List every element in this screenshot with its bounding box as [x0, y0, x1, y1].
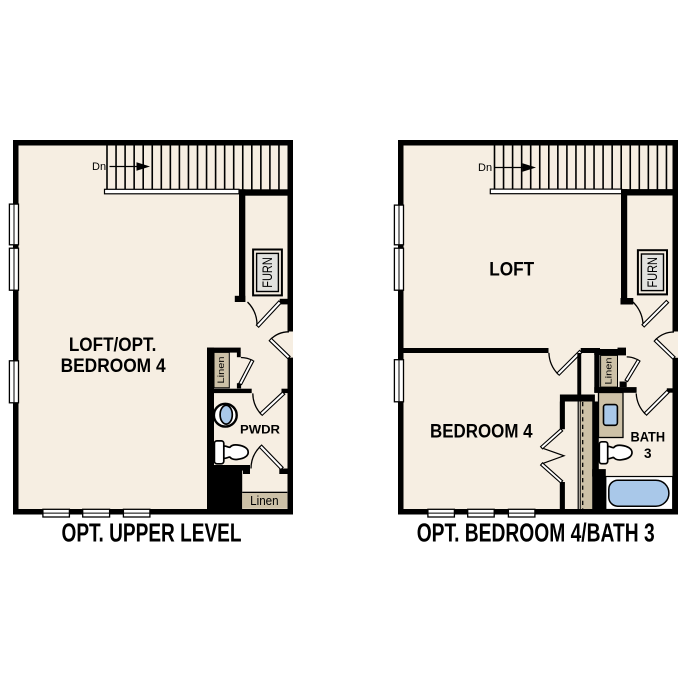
svg-text:3: 3 [644, 446, 652, 461]
svg-text:LOFT: LOFT [489, 260, 534, 281]
svg-text:Dn: Dn [478, 162, 492, 174]
svg-text:LOFT/OPT.: LOFT/OPT. [69, 335, 157, 356]
svg-text:FURN: FURN [260, 257, 275, 288]
svg-text:BEDROOM 4: BEDROOM 4 [61, 356, 166, 377]
svg-text:OPT. UPPER LEVEL: OPT. UPPER LEVEL [62, 517, 242, 547]
svg-text:Dn: Dn [92, 161, 106, 173]
svg-text:PWDR: PWDR [240, 424, 281, 437]
svg-text:Linen: Linen [216, 357, 226, 384]
svg-text:BEDROOM 4: BEDROOM 4 [430, 422, 533, 443]
svg-text:BATH: BATH [631, 429, 666, 444]
svg-text:OPT. BEDROOM 4/BATH 3: OPT. BEDROOM 4/BATH 3 [417, 517, 655, 547]
svg-text:Linen: Linen [250, 493, 279, 508]
svg-text:Linen: Linen [604, 358, 614, 385]
svg-text:FURN: FURN [645, 257, 660, 288]
